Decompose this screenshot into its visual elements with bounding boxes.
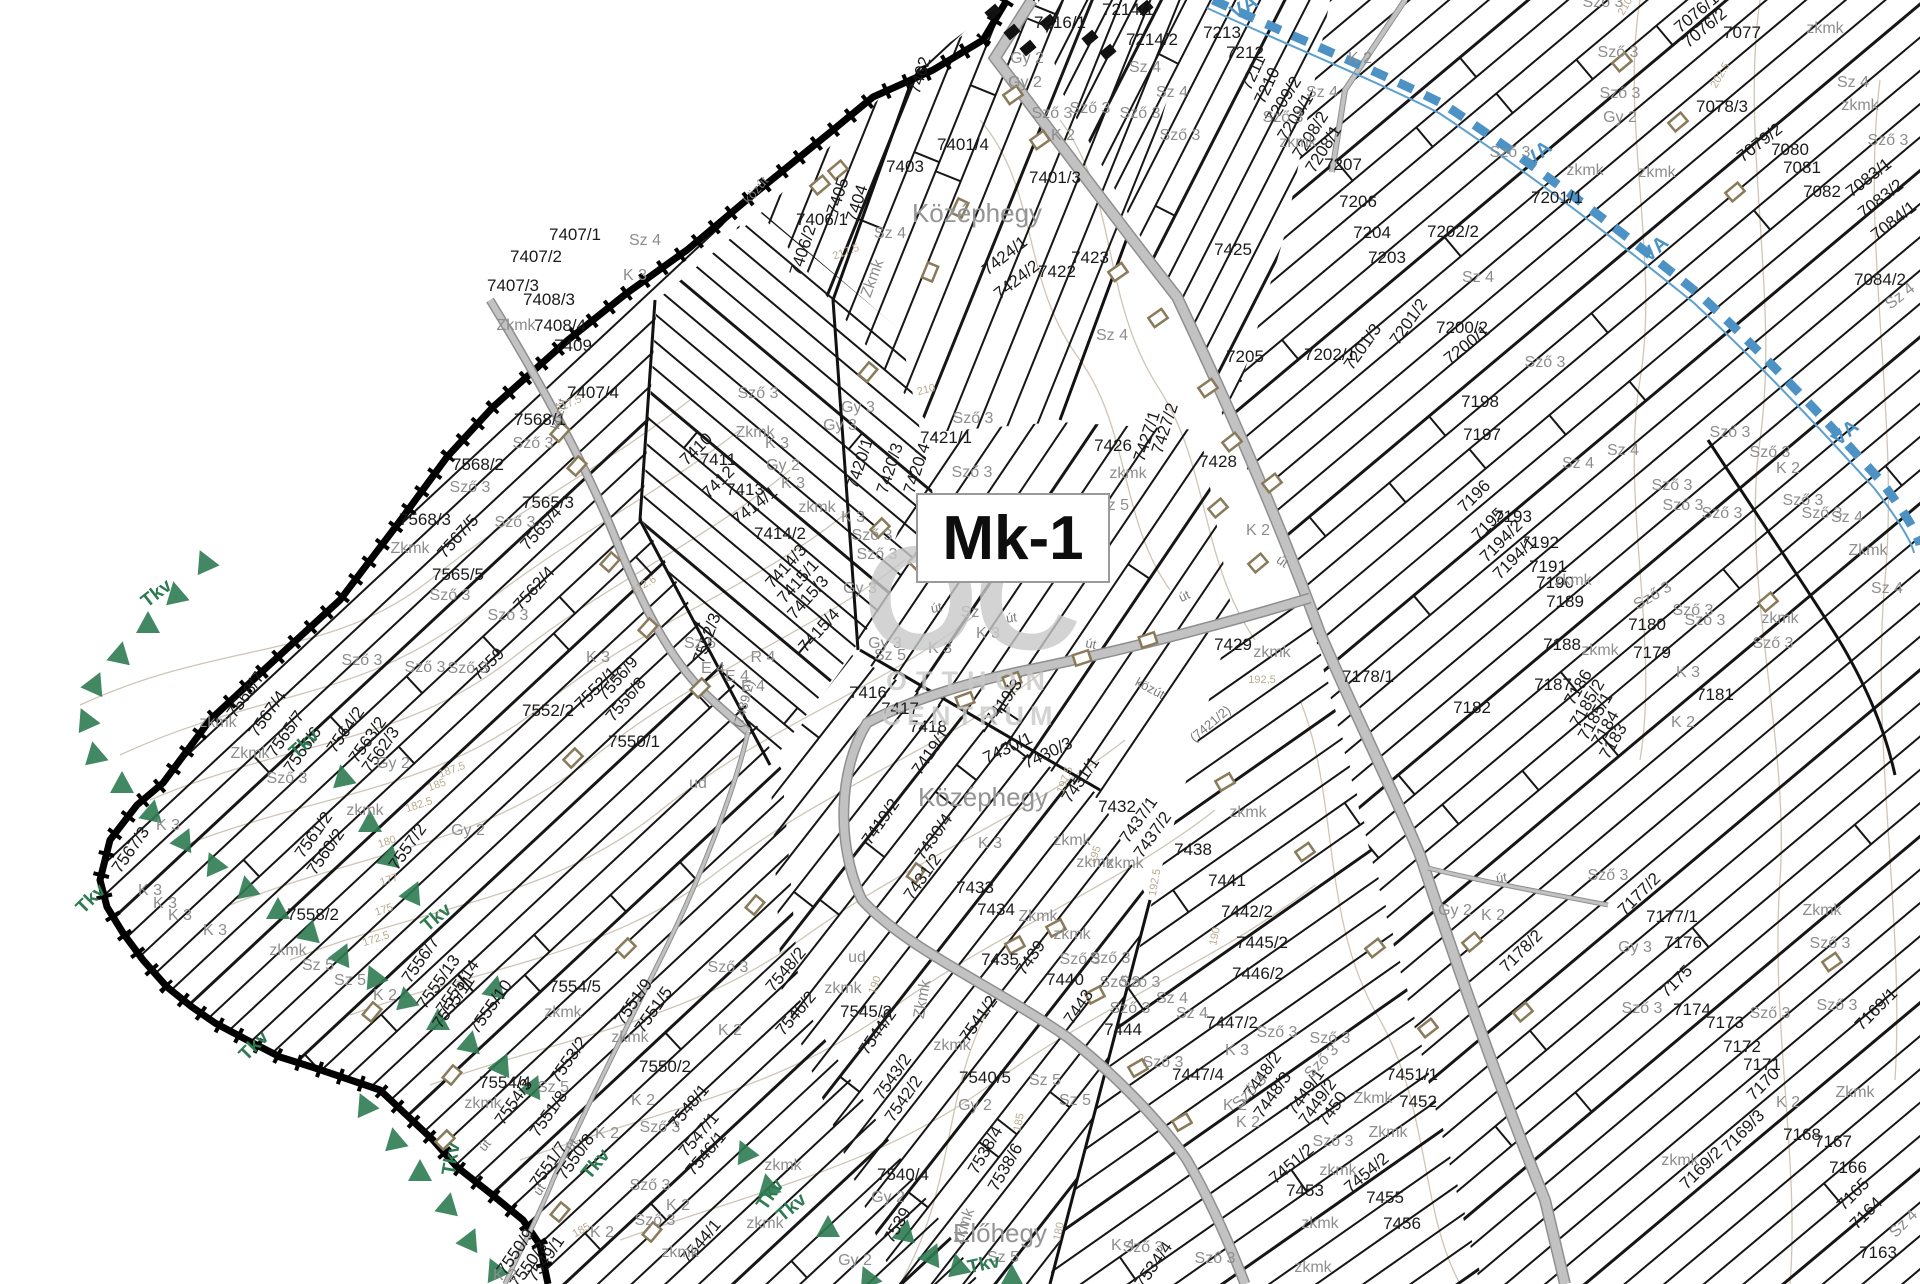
parcel-cross-line: [946, 1148, 962, 1165]
parcel-cross-line: [665, 1033, 681, 1050]
parcel-boundary-line: [207, 0, 1885, 1284]
parcel-cross-line: [1345, 803, 1360, 825]
map-label: zkmk: [1761, 610, 1799, 627]
map-label: 7213: [1203, 23, 1241, 42]
parcel-cross-line: [497, 221, 510, 237]
parcel-stripe-group: [0, 0, 1920, 1284]
map-label: Sző 3: [405, 659, 446, 676]
parcel-cross-line: [1496, 93, 1512, 113]
map-label: zkmk: [544, 1004, 582, 1021]
map-label: zkmk: [1581, 642, 1619, 659]
map-label: zkmk: [1279, 134, 1317, 151]
map-label: Sző 3: [1160, 127, 1201, 144]
map-label: Sz 4: [1607, 442, 1639, 459]
parcel-cross-line: [848, 707, 861, 723]
map-label: 185: [1011, 1112, 1027, 1132]
parcel-boundary-line: [0, 0, 1920, 1284]
parcel-cross-line: [1239, 380, 1259, 390]
parcel-cross-line: [1282, 872, 1298, 892]
map-label: Sző 3: [635, 1212, 676, 1229]
map-label: zkmk: [1841, 97, 1879, 114]
parcel-cross-line: [680, 862, 696, 879]
tkv-triangle-icon: [408, 1159, 432, 1181]
parcel-stripe-group: [0, 0, 1920, 1284]
map-label: 7453: [1286, 1181, 1324, 1200]
map-label: 7206: [1339, 192, 1377, 211]
tkv-triangle-icon: [729, 1135, 760, 1165]
tkv-triangle-icon: [80, 667, 111, 697]
map-label: 7167: [1814, 1132, 1852, 1151]
map-label: K 3: [928, 640, 952, 657]
map-label: 7173: [1706, 1013, 1744, 1032]
parcel-cross-line: [1549, 415, 1565, 435]
map-label: Sző 3: [1100, 974, 1141, 991]
map-label: út: [930, 599, 944, 616]
map-label: K 2: [631, 1092, 655, 1109]
parcel-cross-line: [803, 1248, 818, 1270]
parcel-boundary-line: [0, 0, 1920, 1284]
map-label: K 2: [1776, 1094, 1800, 1111]
parcel-cross-line: [1575, 1092, 1591, 1112]
parcel-cross-line: [970, 85, 995, 95]
map-label: 7080: [1771, 140, 1809, 159]
place-name-label: Középhegy: [912, 198, 1042, 228]
map-label: 192.5: [1147, 868, 1164, 897]
map-label: zkmk: [346, 802, 384, 819]
tkv-triangle-icon: [81, 739, 109, 766]
map-label: 7444: [1104, 1020, 1142, 1039]
map-label: K 2: [595, 1125, 619, 1142]
parcel-cross-line: [525, 975, 541, 992]
map-label: Tkv: [966, 1251, 1003, 1278]
map-label: Sz 5: [1059, 1092, 1091, 1109]
tkv-triangle-icon: [434, 1190, 462, 1217]
parcel-cross-line: [1229, 551, 1245, 571]
parcel-cross-line: [1656, 26, 1672, 46]
building-icon: [1248, 554, 1267, 573]
map-label: Sző 3: [342, 652, 383, 669]
map-label: 192,5: [1248, 674, 1276, 686]
map-label: Sző 3: [1032, 105, 1073, 122]
parcel-cross-line: [1723, 569, 1739, 589]
parcel-cross-line: [1309, 517, 1325, 537]
map-label: 7552/2: [522, 701, 574, 720]
place-name-label: Középhegy: [918, 782, 1048, 812]
parcel-cross-line: [244, 860, 260, 877]
parcel-cross-line: [1576, 60, 1592, 80]
parcel-cross-line: [784, 708, 797, 724]
parcel-cross-line: [228, 1094, 244, 1111]
map-label: Gy 2: [838, 1252, 872, 1269]
map-label: K 3: [586, 649, 610, 666]
map-label: R 4: [751, 649, 776, 666]
map-label: 7203: [1368, 248, 1406, 267]
map-label: 7401/3: [1029, 168, 1081, 187]
building-icon: [616, 938, 635, 957]
parcel-boundary-line: [0, 0, 1920, 1284]
map-label: Gy 3: [823, 417, 857, 434]
map-label: 7188: [1543, 635, 1581, 654]
map-label: ud: [848, 949, 866, 966]
map-label: K 2: [1776, 460, 1800, 477]
parcel-cross-line: [799, 722, 819, 737]
parcel-cross-line: [1522, 771, 1538, 791]
map-label: Sz 4: [629, 232, 661, 249]
tkv-triangle-icon: [136, 611, 160, 633]
map-label: 7177/1: [1646, 907, 1698, 926]
map-label: Sz 4: [1886, 1206, 1920, 1241]
building-icon: [563, 748, 582, 767]
parcel-cross-line: [419, 155, 432, 171]
map-label: 7077: [1723, 23, 1761, 42]
map-label: 7417: [881, 699, 919, 718]
parcel-cross-line: [830, 1064, 845, 1086]
map-label: 7441: [1208, 871, 1246, 890]
place-name-label: Előhegy: [953, 1218, 1047, 1248]
map-label: Zkmk: [1848, 542, 1888, 559]
map-label: Sző 3: [1525, 354, 1566, 371]
map-label: K 2: [1051, 127, 1075, 144]
parcel-cross-line: [1496, 1224, 1511, 1246]
map-label: út: [475, 1136, 494, 1154]
parcel-cross-line: [1530, 1031, 1546, 1051]
building-icon: [1148, 309, 1167, 327]
map-label: Sző 3: [430, 587, 471, 604]
map-label: 7568/2: [452, 455, 504, 474]
tkv-triangle-icon: [329, 762, 357, 789]
parcel-cross-line: [1159, 54, 1179, 64]
map-label: K 3: [203, 922, 227, 939]
tkv-triangle-icon: [198, 847, 229, 877]
parcel-cross-line: [1128, 564, 1150, 579]
map-label: zkmk: [1638, 164, 1676, 181]
map-label: zkmk: [1253, 644, 1291, 661]
parcel-cross-line: [1591, 313, 1607, 333]
map-label: Sző 3: [1622, 1000, 1663, 1017]
parcel-cross-line: [744, 995, 766, 1010]
parcel-cross-line: [381, 1014, 397, 1031]
building-icon: [1462, 933, 1481, 952]
map-label: Sző 3: [1598, 44, 1639, 61]
map-label: Sző 3: [857, 546, 898, 563]
cadastral-map-page: 7401/47401/374027403740474057406/17406/2…: [0, 0, 1920, 1284]
map-label: 7425: [1214, 240, 1252, 259]
map-label: Sz 4: [1156, 84, 1188, 101]
parcel-cross-line: [1713, 809, 1728, 831]
map-label: Sző 3: [488, 607, 529, 624]
map-label: 7401/4: [937, 135, 989, 154]
parcel-cross-line: [723, 350, 739, 367]
map-label: K 3: [781, 475, 805, 492]
map-label: 7423: [1071, 248, 1109, 267]
map-label: Zkmk: [230, 745, 270, 762]
map-label: zkmk: [1053, 832, 1091, 849]
parcel-cross-line: [1202, 906, 1218, 926]
parcel-cross-line: [1608, 1179, 1623, 1201]
map-label: 175: [373, 902, 394, 919]
map-label: Sző 3: [513, 435, 554, 452]
map-label: 7414/2: [754, 524, 806, 543]
map-label: Sző 3: [1710, 424, 1751, 441]
map-label: 7202/2: [1427, 222, 1479, 241]
map-label: 7438: [1174, 840, 1212, 859]
map-label: 7409: [554, 336, 592, 355]
tkv-triangle-icon: [110, 771, 134, 793]
map-label: Sző 3: [1750, 444, 1791, 461]
parcel-boundary-line: [93, 0, 1920, 1284]
map-label: K 2: [1246, 522, 1270, 539]
parcel-cross-line: [215, 1201, 231, 1218]
parcel-cross-line: [794, 892, 814, 907]
map-label: Zkmk: [390, 540, 430, 557]
parcel-boundary-line: [487, 0, 1611, 1284]
map-label: út: [1005, 609, 1018, 625]
map-label: K 4: [1111, 1237, 1135, 1254]
map-label: 7455: [1366, 1188, 1404, 1207]
map-label: Gy 3: [843, 580, 877, 597]
map-label: Sző 3: [1313, 1133, 1354, 1150]
map-label: Sző 3: [1868, 132, 1909, 149]
map-label: 7406/2: [786, 223, 820, 278]
map-label: zkmk: [764, 1157, 802, 1174]
map-label: 7166: [1829, 1158, 1867, 1177]
map-label: 7078/3: [1696, 97, 1748, 116]
map-label: 7408/4: [534, 316, 586, 335]
map-label: 7550/1: [608, 732, 660, 751]
parcel-boundary-line: [0, 0, 1920, 1284]
map-label: E 4: [701, 660, 725, 677]
map-label: K 3: [156, 817, 180, 834]
map-label: 7179: [1633, 643, 1671, 662]
zone-code-box: Mk-1: [916, 493, 1110, 583]
map-label: 177: [378, 872, 399, 889]
parcel-boundary-line: [0, 0, 1920, 1284]
map-label: 7216/1: [1034, 13, 1086, 32]
map-label: 7407/1: [549, 225, 601, 244]
map-label: Sző 3: [1120, 105, 1161, 122]
map-label: Sz 4: [1462, 269, 1494, 286]
map-label: zkmk: [1661, 1152, 1699, 1169]
map-label: Gy 2: [1438, 902, 1472, 919]
parcel-cross-line: [722, 980, 744, 995]
map-label: Gy 2: [1010, 50, 1044, 67]
map-label: 7554/5: [549, 977, 601, 996]
roads-layer: [490, 0, 1608, 1284]
map-label: 7201/1: [1531, 188, 1583, 207]
map-label: 7411: [700, 450, 737, 469]
map-label: Sző 3: [1195, 1250, 1236, 1267]
parcel-boundary-line: [513, 0, 1875, 1284]
map-label: zkmk: [933, 1037, 971, 1054]
map-label: Sz 5: [334, 972, 366, 989]
parcel-boundary-line: [0, 0, 1920, 1284]
map-label: zkmk: [464, 1095, 502, 1112]
map-label: zkmk: [1294, 1259, 1332, 1276]
map-label: 7172: [1723, 1037, 1761, 1056]
parcel-cross-line: [1442, 805, 1458, 825]
parcel-cross-line: [936, 171, 961, 181]
map-label: Sz 4: [1837, 74, 1869, 91]
parcel-boundary-line: [0, 0, 1919, 1284]
map-label: zkmk: [199, 714, 237, 731]
map-label: Sz 4: [874, 225, 906, 242]
map-label: 7456: [1383, 1214, 1421, 1233]
map-label: zkmk: [1301, 1215, 1339, 1232]
map-label: (7421/2): [1187, 702, 1234, 745]
parcel-cross-line: [1077, 692, 1097, 707]
parcel-stripe-group: [0, 0, 1920, 1284]
map-label: Sz 5: [874, 647, 906, 664]
parcel-cross-line: [1469, 449, 1485, 469]
map-label: Sz 4: [1096, 327, 1128, 344]
parcel-cross-line: [407, 676, 423, 693]
map-label: 7558/2: [287, 905, 339, 924]
map-label: K 3: [168, 907, 192, 924]
parcel-cross-line: [1429, 416, 1445, 436]
map-label: Gy 3: [841, 399, 875, 416]
map-label: Tkv: [417, 899, 456, 936]
map-label: Sző 3: [1060, 951, 1101, 968]
map-label: Sz 4: [1562, 455, 1594, 472]
map-label: Sző 3: [852, 527, 893, 544]
map-label: 7550/2: [639, 1057, 691, 1076]
map-label: 7447/2: [1206, 1013, 1258, 1032]
parcel-cross-line: [88, 973, 104, 990]
map-label: 7205: [1226, 347, 1264, 366]
map-label: 202.5: [1708, 61, 1732, 91]
parcel-cross-line: [447, 151, 460, 167]
parcel-boundary-line: [73, 0, 1920, 1284]
parcel-cross-line: [1256, 421, 1278, 436]
map-label: 7204: [1353, 223, 1391, 242]
parcel-boundary-line: [0, 0, 1920, 1284]
map-label: 7540/4: [877, 1165, 929, 1184]
map-label: K 2: [1223, 1097, 1247, 1114]
map-label: Sző 3: [1685, 612, 1726, 629]
map-label: Zkmk: [1018, 908, 1058, 925]
map-label: Sz 4: [1306, 84, 1338, 101]
tkv-triangle-icon: [455, 1223, 486, 1253]
map-label: Sző 3: [1802, 505, 1843, 522]
map-label: zkmk: [798, 499, 836, 516]
parcel-cross-line: [1174, 706, 1187, 722]
map-label: Sző 3: [1810, 935, 1851, 952]
map-label: 7081: [1783, 158, 1821, 177]
parcel-boundary-line: [0, 0, 1920, 1284]
map-label: 7452: [1399, 1092, 1437, 1111]
building-icon: [1030, 131, 1049, 149]
map-label: 7163: [1859, 1243, 1897, 1262]
parcel-cross-line: [222, 291, 235, 307]
map-label: zkmk: [824, 980, 862, 997]
map-label: 7426: [1094, 436, 1132, 455]
map-label: Zkmk: [1353, 1090, 1393, 1107]
parcel-cross-line: [1155, 206, 1175, 216]
parcel-cross-line: [858, 871, 880, 886]
parcel-cross-line: [1282, 340, 1298, 360]
map-label: Sző 3: [1257, 1024, 1298, 1041]
parcel-cross-line: [559, 597, 575, 614]
map-label: 7198: [1461, 392, 1499, 411]
map-label: zkmk: [1319, 1162, 1357, 1179]
parcel-cross-line: [1173, 890, 1188, 912]
map-label: 7445/2: [1236, 933, 1288, 952]
building-icon: [1208, 499, 1227, 518]
map-label: Zkmk: [1835, 1084, 1875, 1101]
map-label: Sz 5: [684, 635, 716, 652]
parcel-boundary-line: [0, 0, 1920, 1284]
map-label: 7178/1: [1342, 667, 1394, 686]
tkv-triangle-icon: [70, 703, 101, 733]
map-label: Gy 2: [958, 1097, 992, 1114]
map-label: Sző 3: [738, 385, 779, 402]
map-label: 7429: [1214, 635, 1252, 654]
map-label: út: [1176, 587, 1193, 605]
parcel-boundary-line: [0, 0, 1920, 1284]
parcel-cross-line: [397, 82, 410, 98]
parcel-cross-line: [1120, 1257, 1135, 1279]
map-label: 190: [866, 974, 884, 995]
parcel-boundary-line: [191, 0, 1920, 1284]
map-label: 7451/1: [1386, 1065, 1438, 1084]
map-label: Sző 3: [1702, 505, 1743, 522]
map-label: Sző 3: [1753, 635, 1794, 652]
map-label: 7176: [1664, 933, 1702, 952]
map-label: Sz 4: [1129, 59, 1161, 76]
parcel-cross-line: [1398, 775, 1414, 795]
map-label: Sző 3: [1663, 497, 1704, 514]
parcel-cross-line: [1855, 825, 1871, 845]
parcel-boundary-line: [0, 0, 1920, 1284]
building-icon: [1073, 650, 1092, 665]
parcel-stripe-group: [0, 0, 1920, 1284]
map-label: Sző 3: [1750, 1005, 1791, 1022]
cadastral-map-canvas: 7401/47401/374027403740474057406/17406/2…: [0, 0, 1920, 1284]
parcel-boundary-line: [0, 0, 1920, 1284]
map-label: 7214/1: [1102, 0, 1154, 19]
parcel-cross-line: [1460, 58, 1476, 78]
parcel-cross-line: [1754, 210, 1770, 230]
map-label: 7428: [1199, 452, 1237, 471]
map-label: zkmk: [1806, 20, 1844, 37]
map-label: K 2: [1481, 907, 1505, 924]
map-label: 7201/2: [1386, 295, 1431, 348]
map-label: K 3: [978, 835, 1002, 852]
tkv-triangle-icon: [106, 639, 134, 666]
map-label: K 3: [976, 625, 1000, 642]
building-icon: [810, 176, 829, 195]
map-label: zkmk: [1229, 804, 1267, 821]
map-label: Sző 3: [630, 1177, 671, 1194]
building-icon: [1215, 773, 1234, 791]
map-label: K 3: [1225, 1042, 1249, 1059]
parcel-boundary-line: [0, 0, 1920, 1284]
parcel-boundary-line: [190, 0, 1920, 1284]
map-label: 7403: [886, 157, 924, 176]
map-label: Gy 2: [451, 822, 485, 839]
map-label: 7540/5: [959, 1068, 1011, 1087]
map-label: K 2: [590, 1224, 614, 1241]
parcel-stripe-group: [78, 0, 1920, 1284]
parcel-cross-line: [534, 935, 550, 952]
map-label: Sző 3: [495, 514, 536, 531]
tkv-triangle-icon: [349, 1088, 380, 1118]
map-label: Zkmk: [1802, 902, 1842, 919]
map-label: Gy 2: [376, 755, 410, 772]
parcel-cross-line: [1121, 1042, 1141, 1057]
building-icon: [1108, 263, 1127, 281]
map-label: K 2: [718, 1022, 742, 1039]
